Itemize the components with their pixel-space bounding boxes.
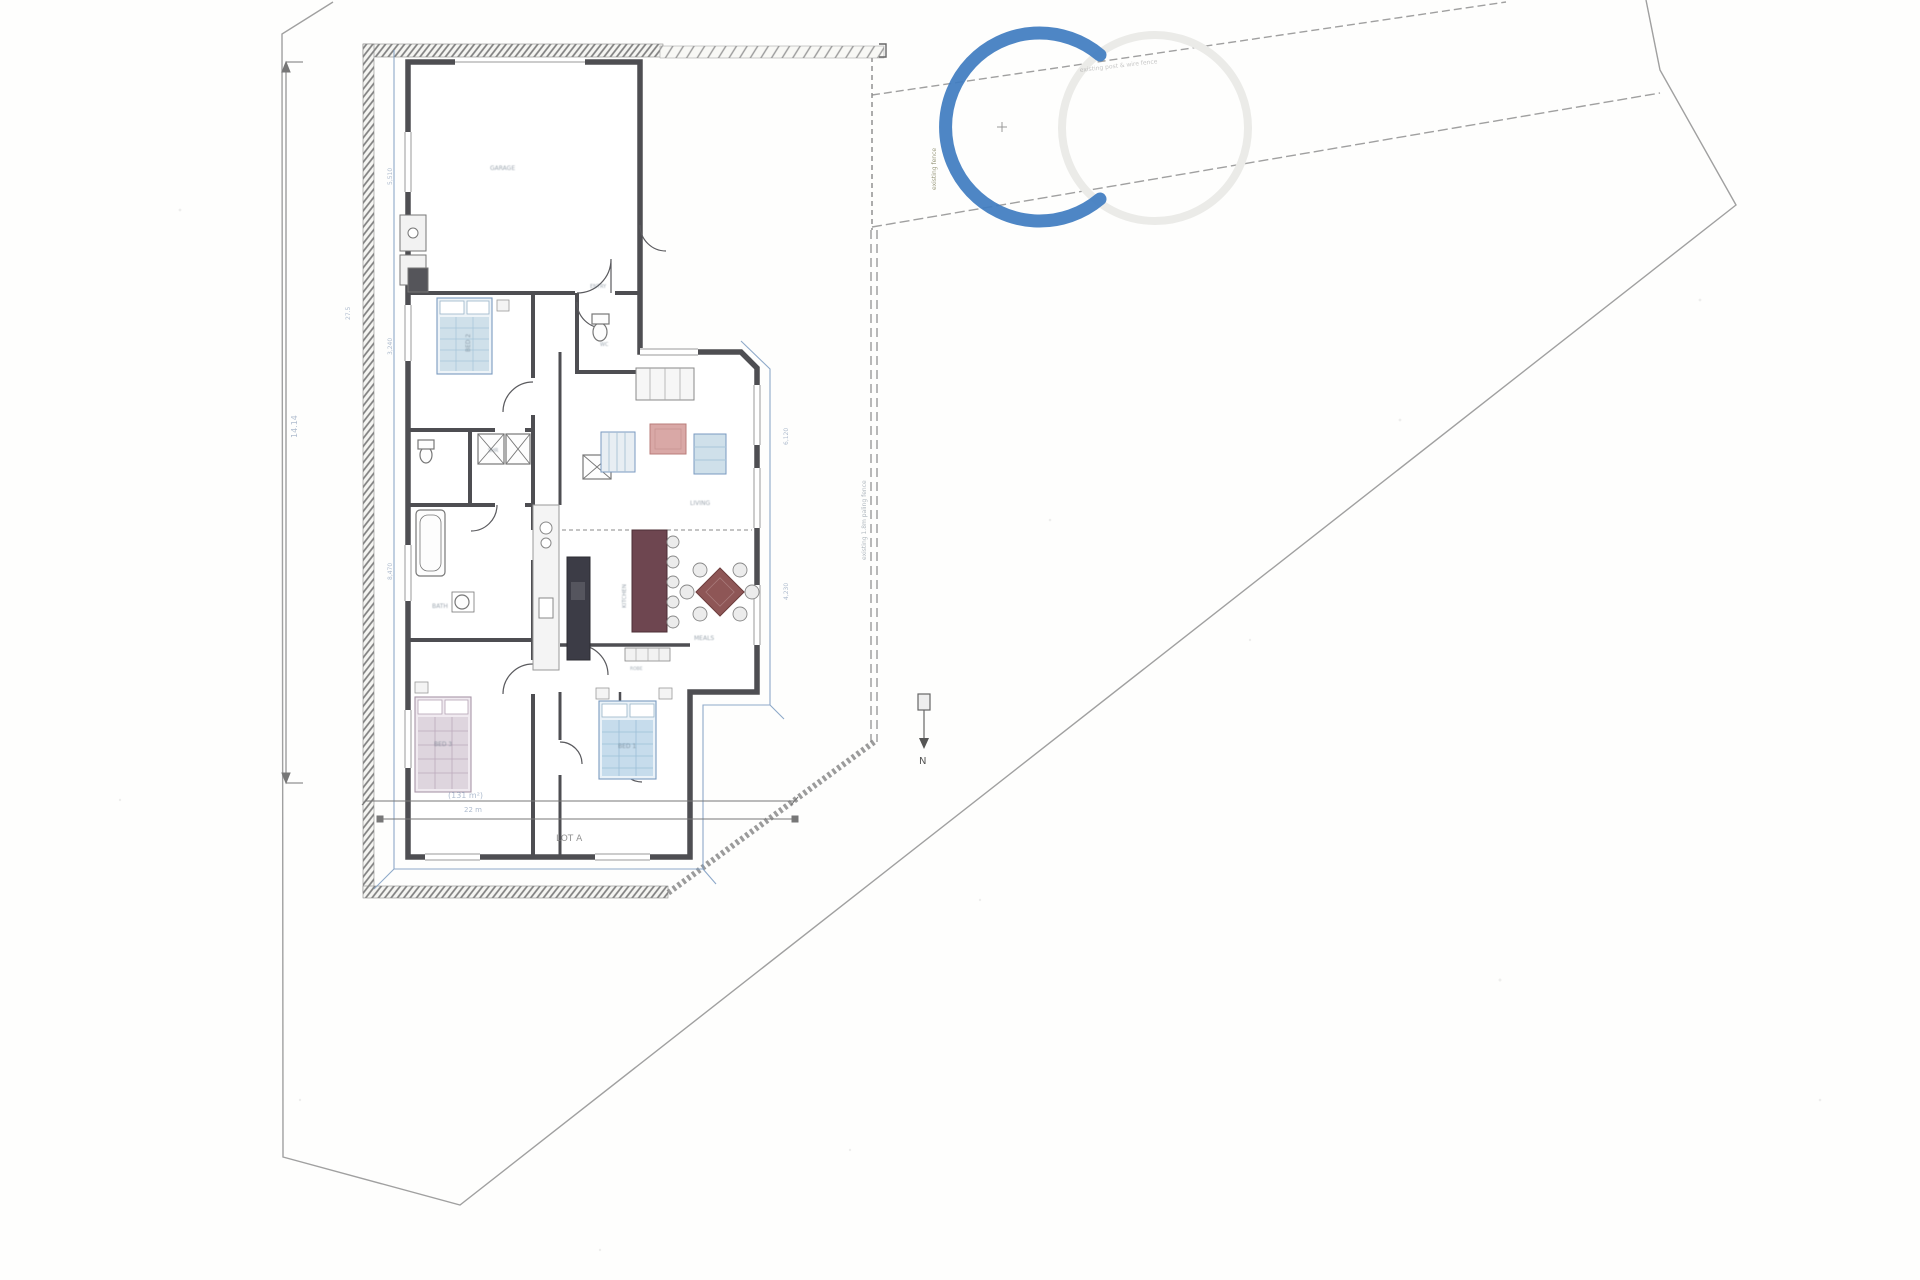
side-dimension: 14.14 bbox=[290, 415, 299, 438]
bed-3 bbox=[415, 682, 471, 792]
room-label-bed3: BED 3 bbox=[434, 741, 452, 748]
room-label-bed1: BED 1 bbox=[618, 743, 636, 750]
room-label-living: LIVING bbox=[690, 500, 710, 507]
room-label-garage: GARAGE bbox=[490, 165, 515, 172]
north-label: N bbox=[919, 756, 926, 767]
room-label-meals: MEALS bbox=[694, 635, 714, 642]
room-label-bed2: BED 2 bbox=[465, 334, 472, 352]
dim-1: 3,240 bbox=[387, 338, 394, 355]
dim-0: 5,510 bbox=[387, 168, 394, 185]
length-label: 22 m bbox=[464, 806, 482, 814]
north-arrow: N bbox=[918, 694, 930, 767]
lot-label: LOT A bbox=[556, 834, 583, 844]
room-label-wc: WC bbox=[600, 342, 609, 348]
dim-4: 4,230 bbox=[783, 583, 790, 600]
dim-2: 8,470 bbox=[387, 563, 394, 580]
blue-arc-stamp bbox=[946, 33, 1100, 221]
dim-5: 27.5 bbox=[345, 306, 352, 320]
room-label-shr: SHR bbox=[488, 448, 499, 454]
dim-3: 6,120 bbox=[783, 428, 790, 445]
area-label: (131 m²) bbox=[448, 791, 483, 800]
site-plan-drawing: N (131 m²) 22 m LOT A 14.14 5,510 3,240 … bbox=[0, 0, 1920, 1280]
room-label-entry: ENTRY bbox=[590, 284, 607, 290]
fence-corridor-label: existing fence bbox=[931, 148, 938, 190]
room-label-robe: ROBE bbox=[630, 666, 643, 672]
room-label-kitchen: KITCHEN bbox=[622, 584, 628, 608]
room-label-bath: BATH bbox=[432, 603, 448, 610]
fence-side-label: existing 1.8m paling fence bbox=[861, 480, 868, 560]
scanned-site-plan-page: N (131 m²) 22 m LOT A 14.14 5,510 3,240 … bbox=[0, 0, 1920, 1280]
